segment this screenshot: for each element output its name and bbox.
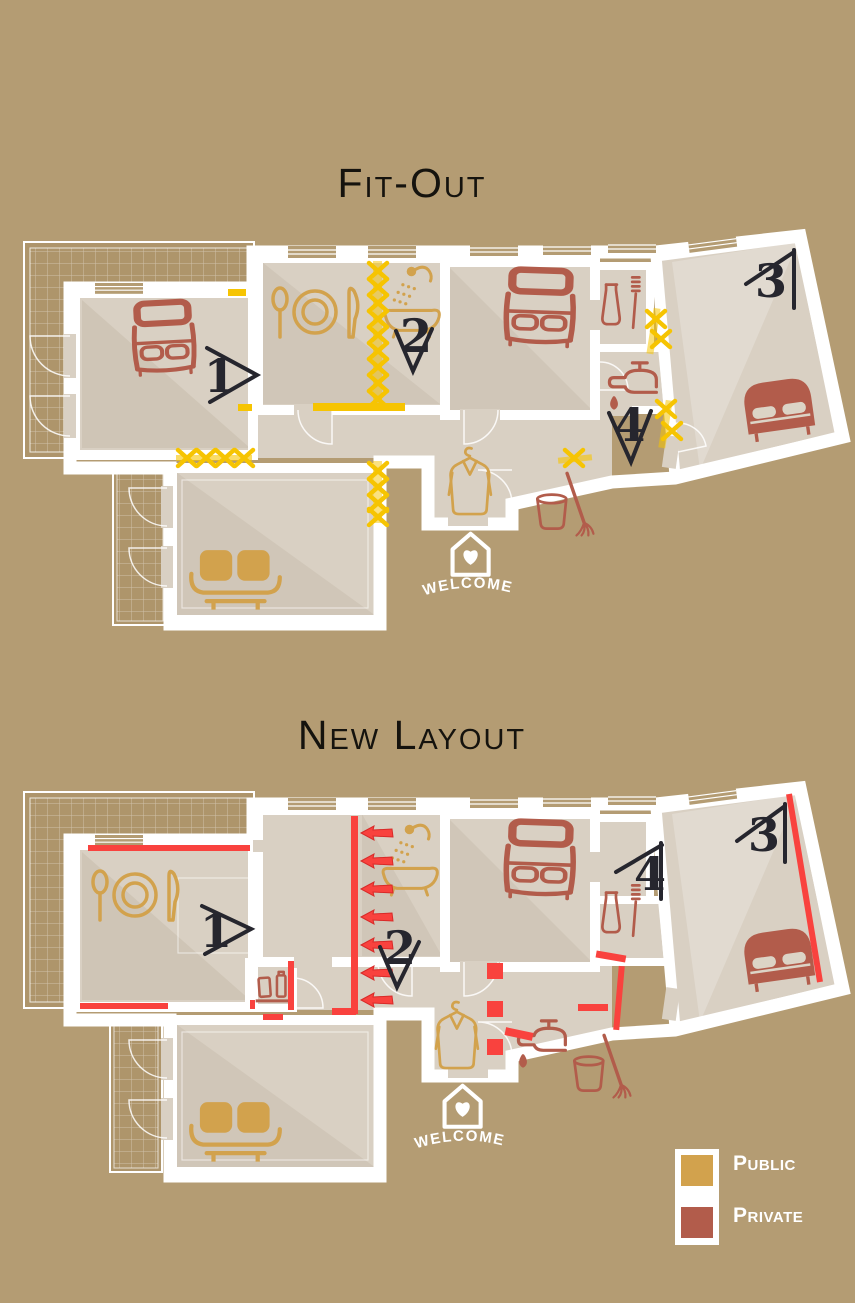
marker-4-number: 4 <box>614 398 646 452</box>
legend-swatch-box <box>675 1149 719 1245</box>
welcome-label: WELCOME <box>413 1128 507 1153</box>
welcome-sign: WELCOME <box>413 1086 507 1152</box>
legend-swatch-private <box>681 1207 713 1238</box>
marker-1-number: 1 <box>200 904 232 958</box>
marker-3-number: 3 <box>748 808 780 862</box>
marker-2: 2 <box>396 309 432 371</box>
marker-4: 4 <box>609 398 651 462</box>
welcome-label: WELCOME <box>421 575 515 600</box>
legend: Public Private <box>655 1142 855 1262</box>
welcome-house-icon <box>445 1086 481 1127</box>
marker-4-number: 4 <box>634 847 666 901</box>
infographic-root: Fit-Out <box>0 0 855 1303</box>
new-layout-floor-plan: 1 2 3 4 WELCOME <box>0 740 855 1210</box>
marker-2-number: 2 <box>400 309 432 363</box>
legend-label-public: Public <box>733 1152 853 1176</box>
marker-3-number: 3 <box>755 254 787 308</box>
welcome-sign: WELCOME <box>421 534 515 599</box>
legend-label-private: Private <box>733 1204 853 1228</box>
welcome-house-icon <box>453 534 489 575</box>
fit-out-floor-plan: 1 2 3 4 WELCOME <box>0 190 855 690</box>
marker-1-number: 1 <box>204 349 236 403</box>
marker-2-number: 2 <box>384 921 416 975</box>
legend-swatch-public <box>681 1155 713 1186</box>
